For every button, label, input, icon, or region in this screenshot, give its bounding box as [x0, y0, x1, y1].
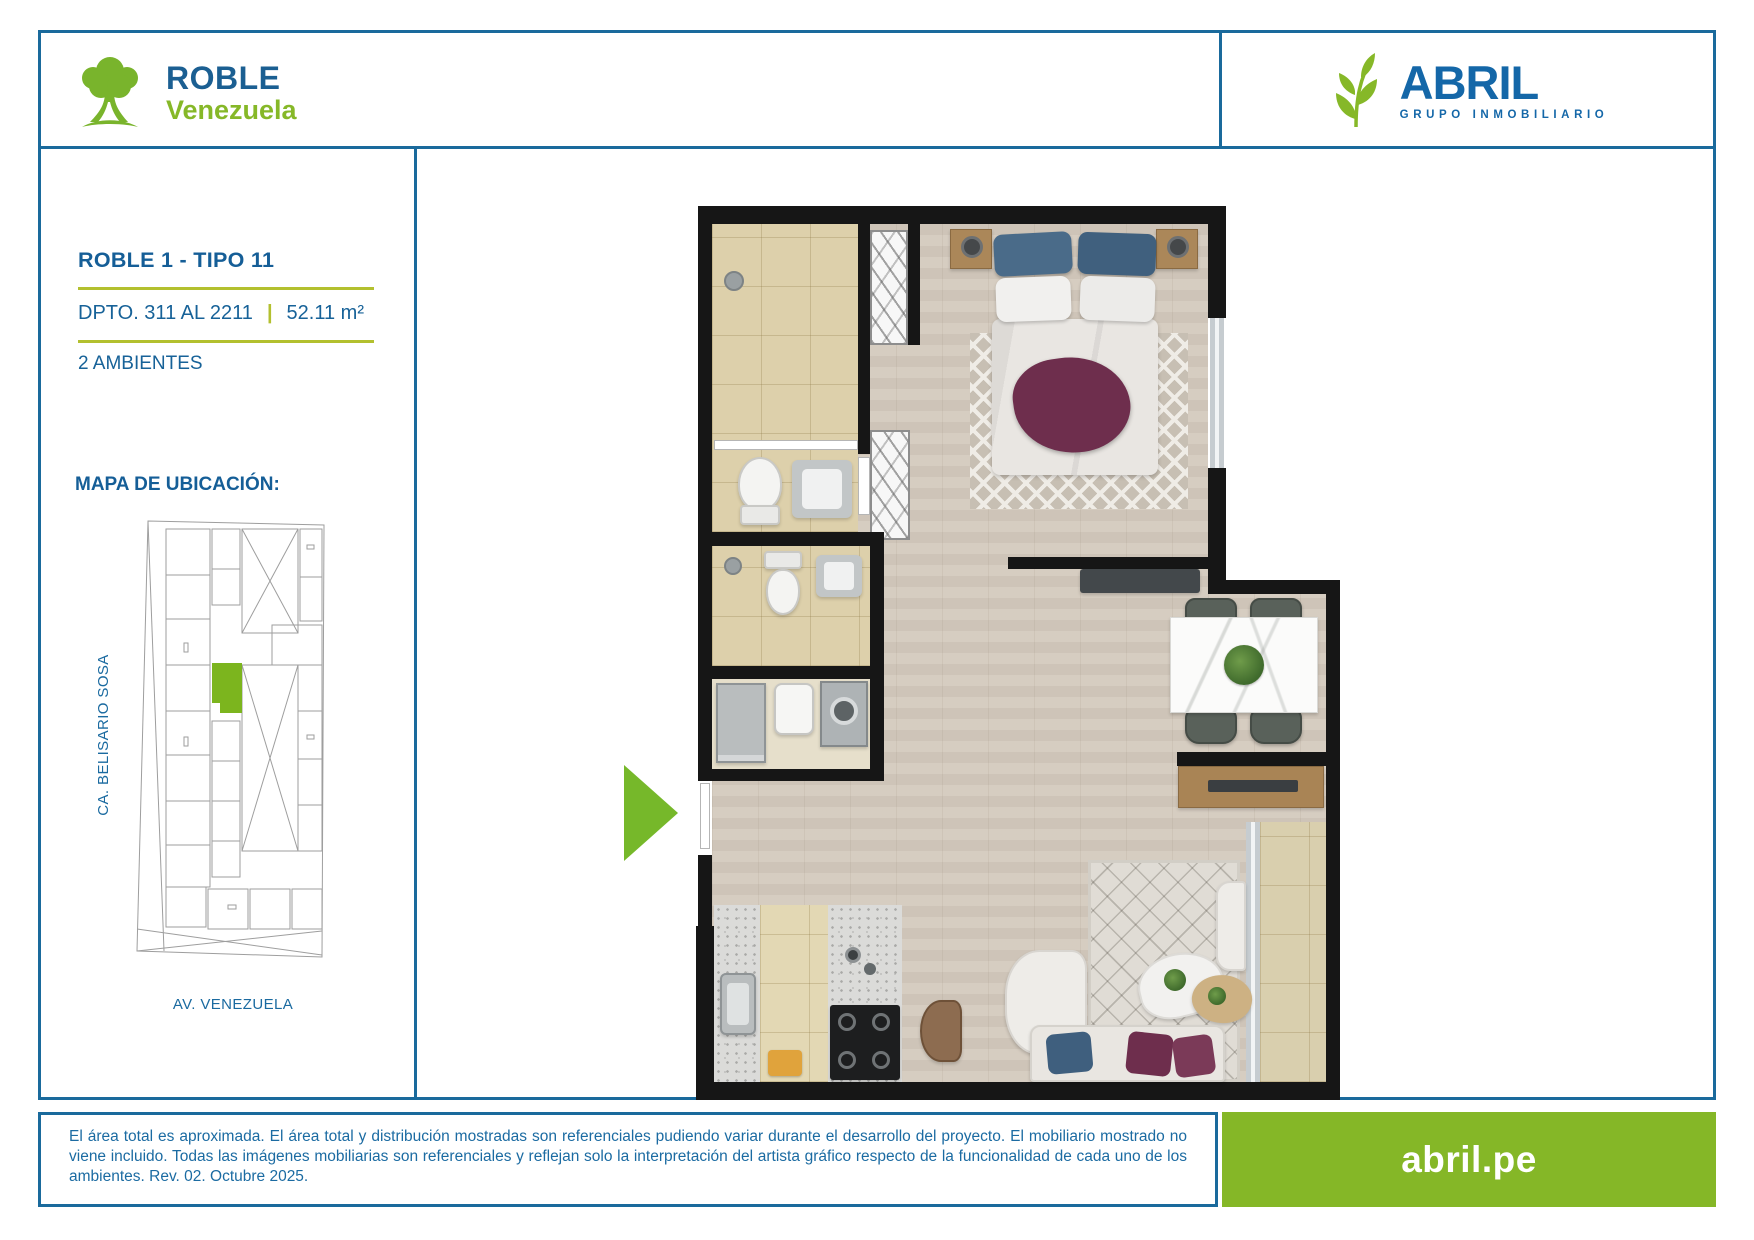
street-label-left: CA. BELISARIO SOSA: [95, 570, 112, 900]
unit-range: DPTO. 311 AL 2211: [78, 302, 253, 325]
sink-basin: [802, 469, 842, 509]
bedroom-window: [1210, 318, 1224, 468]
toilet-bowl: [766, 569, 800, 615]
wall: [870, 532, 884, 769]
closet-sliding-door: [870, 230, 908, 345]
toilet-bowl: [738, 457, 782, 511]
flyer-page: ROBLE Venezuela ABRIL GRUPO INMOBILIARIO…: [0, 0, 1754, 1240]
building-outline: [137, 521, 324, 957]
nightstand-clock: [961, 236, 983, 258]
wall: [698, 532, 870, 546]
bed-pillow-white: [1079, 276, 1155, 323]
armchair: [1216, 881, 1246, 971]
stool: [920, 1000, 962, 1062]
sofa-cushion-purple: [1171, 1033, 1216, 1078]
table-plant: [1164, 969, 1186, 991]
refrigerator: [716, 683, 766, 763]
floor-plan: [640, 205, 1340, 1100]
tree-icon: [70, 52, 150, 136]
unit-info-row: DPTO. 311 AL 2211 | 52.11 m²: [78, 302, 364, 325]
nightstand-clock: [1167, 236, 1189, 258]
wall: [696, 926, 714, 1100]
shower-screen: [714, 440, 858, 450]
wall: [858, 224, 870, 454]
tv-dresser: [1080, 569, 1200, 593]
toilet-tank: [764, 551, 802, 569]
highlighted-unit: [212, 663, 242, 713]
wall: [1177, 752, 1340, 766]
disclaimer-text: El área total es aproximada. El área tot…: [41, 1115, 1215, 1199]
abril-logo-text: ABRIL GRUPO INMOBILIARIO: [1400, 59, 1609, 121]
unit-area: 52.11 m²: [287, 302, 364, 325]
shower-head-icon: [724, 557, 742, 575]
bathroom1-door: [858, 457, 870, 515]
utility-sink: [774, 683, 814, 735]
wall: [700, 206, 1226, 224]
terrace-window: [1246, 822, 1260, 1082]
bed: [992, 227, 1158, 475]
roble-logo: ROBLE Venezuela: [70, 52, 297, 136]
dining-chair: [1185, 708, 1237, 744]
burner: [872, 1051, 890, 1069]
soundbar: [1208, 780, 1298, 792]
map-heading: MAPA DE UBICACIÓN:: [75, 474, 280, 496]
street-label-bottom: AV. VENEZUELA: [128, 996, 338, 1013]
burner: [838, 1051, 856, 1069]
shower-head-icon: [724, 271, 744, 291]
website-button[interactable]: abril.pe: [1222, 1112, 1716, 1207]
bed-pillow-blue: [1077, 232, 1156, 277]
wheat-icon: [1328, 51, 1384, 129]
island-faucet: [845, 947, 861, 963]
wall: [698, 769, 884, 781]
closet-sliding-door: [870, 430, 910, 540]
panel-divider: [414, 149, 417, 1097]
roble-logo-text: ROBLE Venezuela: [166, 62, 297, 127]
table-plant: [1208, 987, 1226, 1005]
wall: [698, 666, 884, 679]
bed-pillow-blue: [993, 231, 1073, 277]
terrace-floor: [1260, 822, 1326, 1082]
wall: [1208, 468, 1226, 580]
sink-basin: [824, 562, 854, 590]
table-plant: [1224, 645, 1264, 685]
wall: [1208, 224, 1226, 318]
burner: [872, 1013, 890, 1031]
washer-drum: [830, 697, 858, 725]
sofa-cushion-blue: [1045, 1031, 1093, 1075]
rule-bottom: [78, 340, 374, 343]
sofa: [1030, 1025, 1225, 1082]
plan-title: ROBLE 1 - TIPO 11: [78, 248, 274, 273]
cutting-board: [768, 1050, 802, 1076]
entry-door: [700, 783, 710, 849]
toilet-tank: [740, 505, 780, 525]
rule-top: [78, 287, 374, 290]
website-label: abril.pe: [1401, 1139, 1537, 1181]
project-location: Venezuela: [166, 95, 297, 126]
rooms-count: 2 AMBIENTES: [78, 353, 203, 375]
dining-chair: [1250, 708, 1302, 744]
stove: [830, 1005, 900, 1080]
wall: [698, 206, 712, 775]
wall: [1008, 557, 1208, 569]
glassware: [864, 963, 876, 975]
project-name: ROBLE: [166, 62, 297, 96]
entry-arrow-icon: [624, 765, 678, 861]
header-divider: [41, 146, 1713, 149]
sink-basin: [727, 983, 749, 1025]
sofa-cushion-purple: [1125, 1031, 1174, 1077]
bed-pillow-white: [995, 276, 1071, 323]
burner: [838, 1013, 856, 1031]
separator: |: [267, 302, 273, 325]
wall: [1326, 580, 1340, 1100]
brand-name: ABRIL: [1400, 59, 1609, 106]
wall: [696, 1082, 1326, 1100]
abril-logo: ABRIL GRUPO INMOBILIARIO: [1220, 33, 1716, 146]
location-map: [128, 515, 333, 963]
wall: [1208, 580, 1340, 594]
disclaimer-box: El área total es aproximada. El área tot…: [38, 1112, 1218, 1207]
brand-tagline: GRUPO INMOBILIARIO: [1400, 109, 1609, 121]
wall: [908, 224, 920, 345]
